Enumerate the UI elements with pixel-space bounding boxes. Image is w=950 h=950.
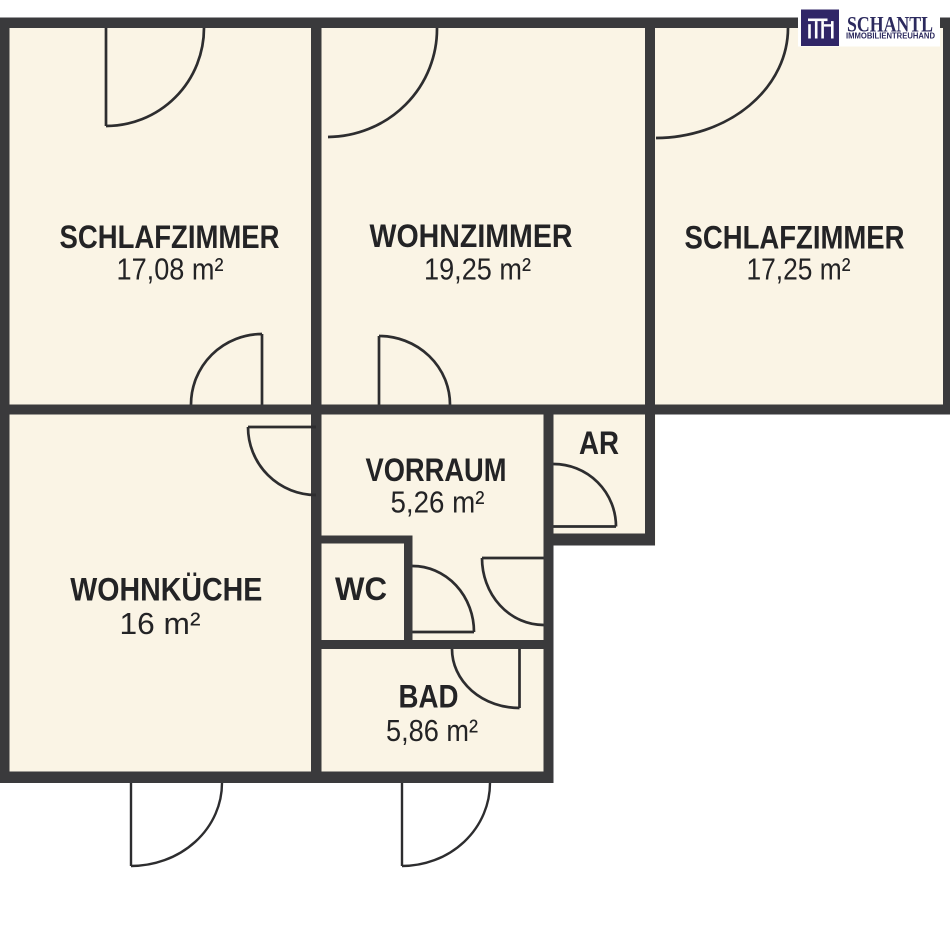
svg-text:AR: AR bbox=[579, 425, 619, 461]
svg-text:19,25 m²: 19,25 m² bbox=[424, 252, 531, 287]
svg-text:5,26 m²: 5,26 m² bbox=[391, 485, 485, 520]
svg-text:IMMOBILIENTREUHAND: IMMOBILIENTREUHAND bbox=[846, 32, 935, 41]
svg-text:BAD: BAD bbox=[399, 679, 459, 715]
svg-text:WOHNZIMMER: WOHNZIMMER bbox=[370, 218, 573, 254]
svg-text:16 m²: 16 m² bbox=[120, 606, 201, 641]
svg-text:WC: WC bbox=[335, 571, 387, 607]
svg-text:SCHLAFZIMMER: SCHLAFZIMMER bbox=[685, 220, 905, 256]
svg-text:SCHLAFZIMMER: SCHLAFZIMMER bbox=[60, 219, 280, 255]
svg-text:5,86 m²: 5,86 m² bbox=[386, 713, 478, 748]
svg-text:17,25 m²: 17,25 m² bbox=[747, 252, 851, 287]
svg-text:17,08 m²: 17,08 m² bbox=[117, 252, 224, 287]
svg-text:WOHNKÜCHE: WOHNKÜCHE bbox=[70, 572, 262, 608]
svg-text:VORRAUM: VORRAUM bbox=[366, 452, 507, 488]
